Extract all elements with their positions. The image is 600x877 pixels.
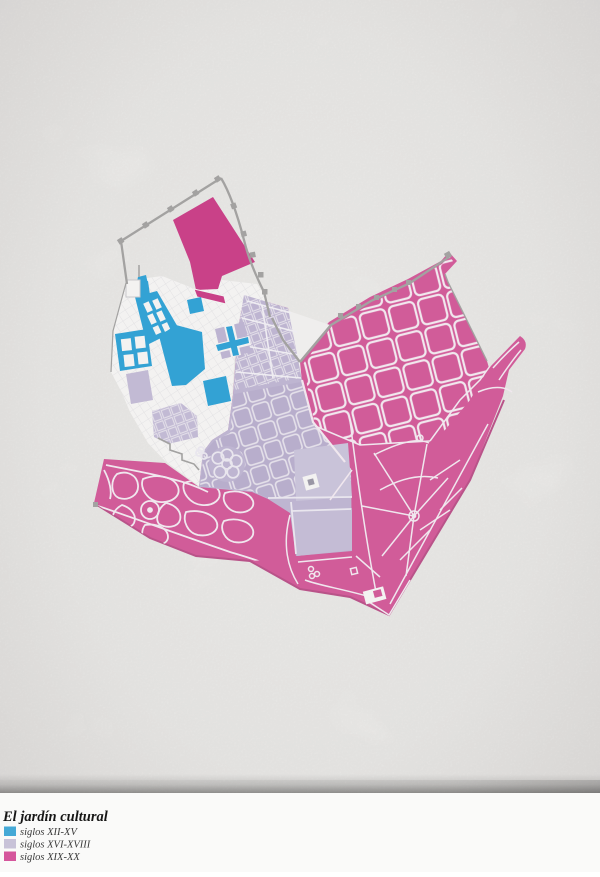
svg-text:siglos XIX-XX: siglos XIX-XX (20, 852, 80, 863)
svg-text:siglos XII-XV: siglos XII-XV (20, 827, 78, 838)
svg-text:El jardín cultural: El jardín cultural (2, 809, 108, 825)
svg-text:siglos XVI-XVIII: siglos XVI-XVIII (20, 840, 91, 851)
